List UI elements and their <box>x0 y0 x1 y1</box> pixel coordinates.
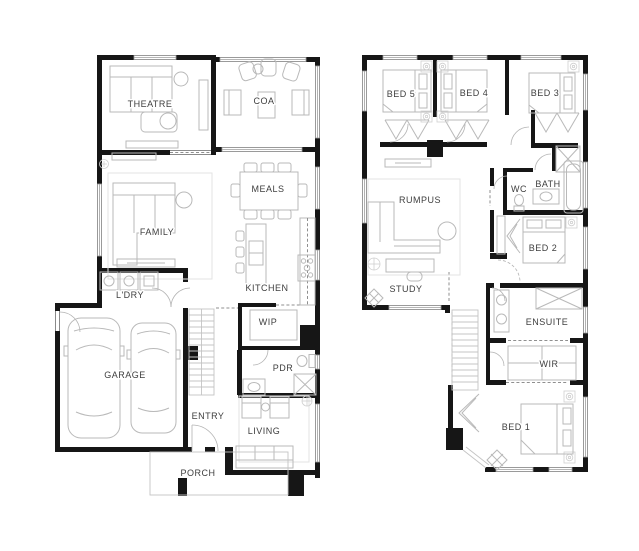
floor-plan-canvas: THEATRE COA MEALS FAMILY KITCHEN L'DRY W… <box>0 0 639 551</box>
vanity-icon <box>494 290 509 332</box>
downlight-icon <box>564 391 575 402</box>
washing-machine-icon <box>100 272 118 290</box>
room-label-rumpus: RUMPUS <box>399 195 441 205</box>
desk-chair-icon <box>407 272 422 281</box>
shower-icon <box>294 374 316 395</box>
ottoman-icon <box>176 192 192 208</box>
room-label-bed4: BED 4 <box>460 88 489 98</box>
room-label-porch: PORCH <box>180 468 215 478</box>
coa-furniture <box>224 59 309 118</box>
desk-icon <box>386 259 434 272</box>
room-label-bed1: BED 1 <box>502 422 531 432</box>
rumpus-furniture <box>368 159 460 275</box>
pdr-fixtures <box>243 355 316 396</box>
sofa-icon <box>113 183 175 265</box>
laundry-tub-icon <box>140 272 158 290</box>
room-label-bed5: BED 5 <box>387 89 416 99</box>
cooktop-icon <box>298 255 315 281</box>
downlights <box>421 61 579 463</box>
outdoor-chair-icon <box>238 61 258 82</box>
hall-door-swing-arc <box>152 288 171 307</box>
room-label-entry: ENTRY <box>192 411 225 421</box>
shower-icon <box>536 288 582 309</box>
bar-stools-icon <box>236 231 244 273</box>
wardrobe-icon <box>497 216 520 254</box>
sofa-icon <box>368 202 440 253</box>
room-label-meals: MEALS <box>251 184 284 194</box>
bed1-double-door-icon <box>459 394 479 432</box>
dryer-icon <box>120 272 138 290</box>
room-label-kitchen: KITCHEN <box>245 283 288 293</box>
armchair-icon <box>242 397 261 418</box>
tv-unit-icon <box>385 159 431 167</box>
room-label-wir: WIR <box>540 359 559 369</box>
laundry-furniture <box>100 272 158 290</box>
garage-door-swing-arc <box>60 312 80 332</box>
bed1-furniture <box>487 404 573 470</box>
armchair-icon <box>270 397 289 418</box>
wardrobe-icon <box>535 113 579 132</box>
room-label-ensuite: ENSUITE <box>526 317 569 327</box>
room-label-living: LIVING <box>248 426 281 436</box>
room-label-coa: COA <box>253 96 274 106</box>
floor-lamp-icon <box>302 396 312 406</box>
downlight-icon <box>566 217 577 228</box>
vanity-icon <box>533 189 559 204</box>
first-floor-plan: BED 5 BED 4 BED 3 RUMPUS WC BATH BED 2 S… <box>362 55 588 472</box>
sofa-icon <box>236 446 293 468</box>
room-label-family: FAMILY <box>140 227 174 237</box>
toilet-icon <box>514 195 524 212</box>
wir-door-swing-arc <box>490 352 504 366</box>
tv-unit-icon <box>117 259 175 267</box>
room-label-wc: WC <box>511 184 527 194</box>
basin-icon <box>243 379 265 395</box>
ground-floor-plan: THEATRE COA MEALS FAMILY KITCHEN L'DRY W… <box>55 55 320 496</box>
study-furniture <box>365 258 434 307</box>
room-label-ldry: L'DRY <box>116 290 144 300</box>
bath-door-swing-arc <box>535 154 551 170</box>
rug <box>368 179 460 275</box>
side-table-icon <box>174 72 188 86</box>
hall-door-swing-arc <box>171 288 190 307</box>
ground-floor-doors <box>60 288 268 451</box>
room-label-study: STUDY <box>389 284 422 294</box>
room-label-theatre: THEATRE <box>128 99 173 109</box>
family-furniture <box>100 153 213 279</box>
room-label-bath: BATH <box>535 179 560 189</box>
room-label-bed3: BED 3 <box>531 88 560 98</box>
room-label-pdr: PDR <box>273 363 294 373</box>
wc-fixtures <box>514 195 524 212</box>
bed3-door-swing-arc <box>511 127 529 145</box>
floor-plan-image: THEATRE COA MEALS FAMILY KITCHEN L'DRY W… <box>0 0 639 551</box>
tv-unit-icon <box>126 141 178 148</box>
downlight-icon <box>568 61 579 72</box>
recliner-icon <box>141 112 177 132</box>
staircase-first <box>452 310 478 390</box>
toilet-icon <box>297 355 315 368</box>
armchair-icon <box>292 90 309 115</box>
kitchen-island-icon <box>246 224 266 284</box>
outdoor-chair-icon <box>282 61 302 82</box>
plant-icon <box>365 289 383 307</box>
wardrobe-icon <box>445 120 489 139</box>
linen-cupboard-icon <box>556 146 580 172</box>
room-label-bed2: BED 2 <box>529 243 558 253</box>
bed2-door-swing-arc <box>498 260 520 282</box>
ottoman-icon <box>438 222 456 240</box>
bed2-furniture <box>523 217 565 263</box>
pdr-door-swing-arc <box>253 350 268 365</box>
room-label-garage: GARAGE <box>104 370 146 380</box>
screen-icon <box>199 80 208 130</box>
armchair-icon <box>224 90 241 115</box>
floor-lamp-icon <box>368 258 380 270</box>
bed-icon <box>523 217 565 263</box>
side-table-icon <box>262 403 270 411</box>
room-label-wip: WIP <box>259 317 278 327</box>
